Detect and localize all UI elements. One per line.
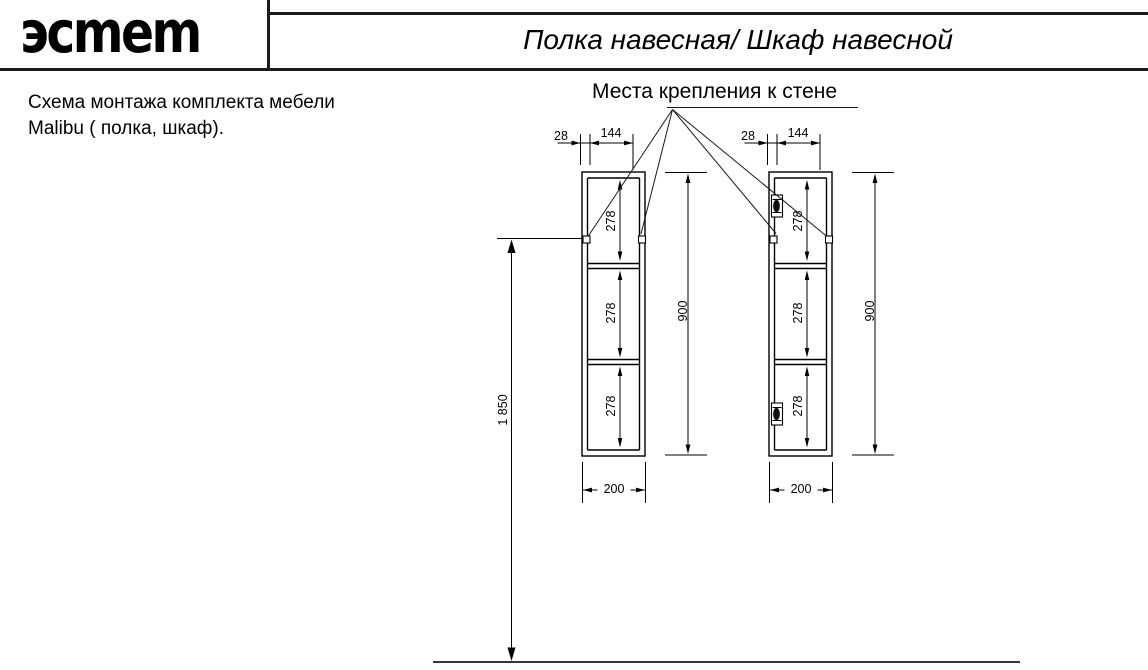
dim-144-right: 144 — [788, 126, 809, 140]
dim-144-left: 144 — [601, 126, 622, 140]
dim-28-right: 28 — [741, 129, 755, 143]
dim-278-right-top: 278 — [791, 211, 805, 232]
left-fixing-pitch-dimension — [558, 134, 634, 170]
dim-900-right: 900 — [863, 301, 877, 322]
dim-28-left: 28 — [554, 129, 568, 143]
assembly-drawing: 1 850 900 900 28 144 28 144 — [0, 0, 1148, 670]
hinge-bottom — [772, 403, 783, 425]
dim-278-right-middle: 278 — [791, 303, 805, 324]
dim-mounting-height-label: 1 850 — [496, 394, 510, 425]
dim-900-left: 900 — [676, 301, 690, 322]
dim-278-left-bottom: 278 — [604, 396, 618, 417]
dim-278-left-middle: 278 — [604, 303, 618, 324]
dim-200-left: 200 — [604, 482, 625, 496]
drawing-sheet: эсmem Полка навесная/ Шкаф навесной Схем… — [0, 0, 1148, 670]
mounting-height-dimension: 1 850 — [496, 239, 582, 662]
right-fixing-pitch-dimension — [745, 134, 821, 170]
dim-278-left-top: 278 — [604, 211, 618, 232]
dim-200-right: 200 — [791, 482, 812, 496]
dim-278-right-bottom: 278 — [791, 396, 805, 417]
